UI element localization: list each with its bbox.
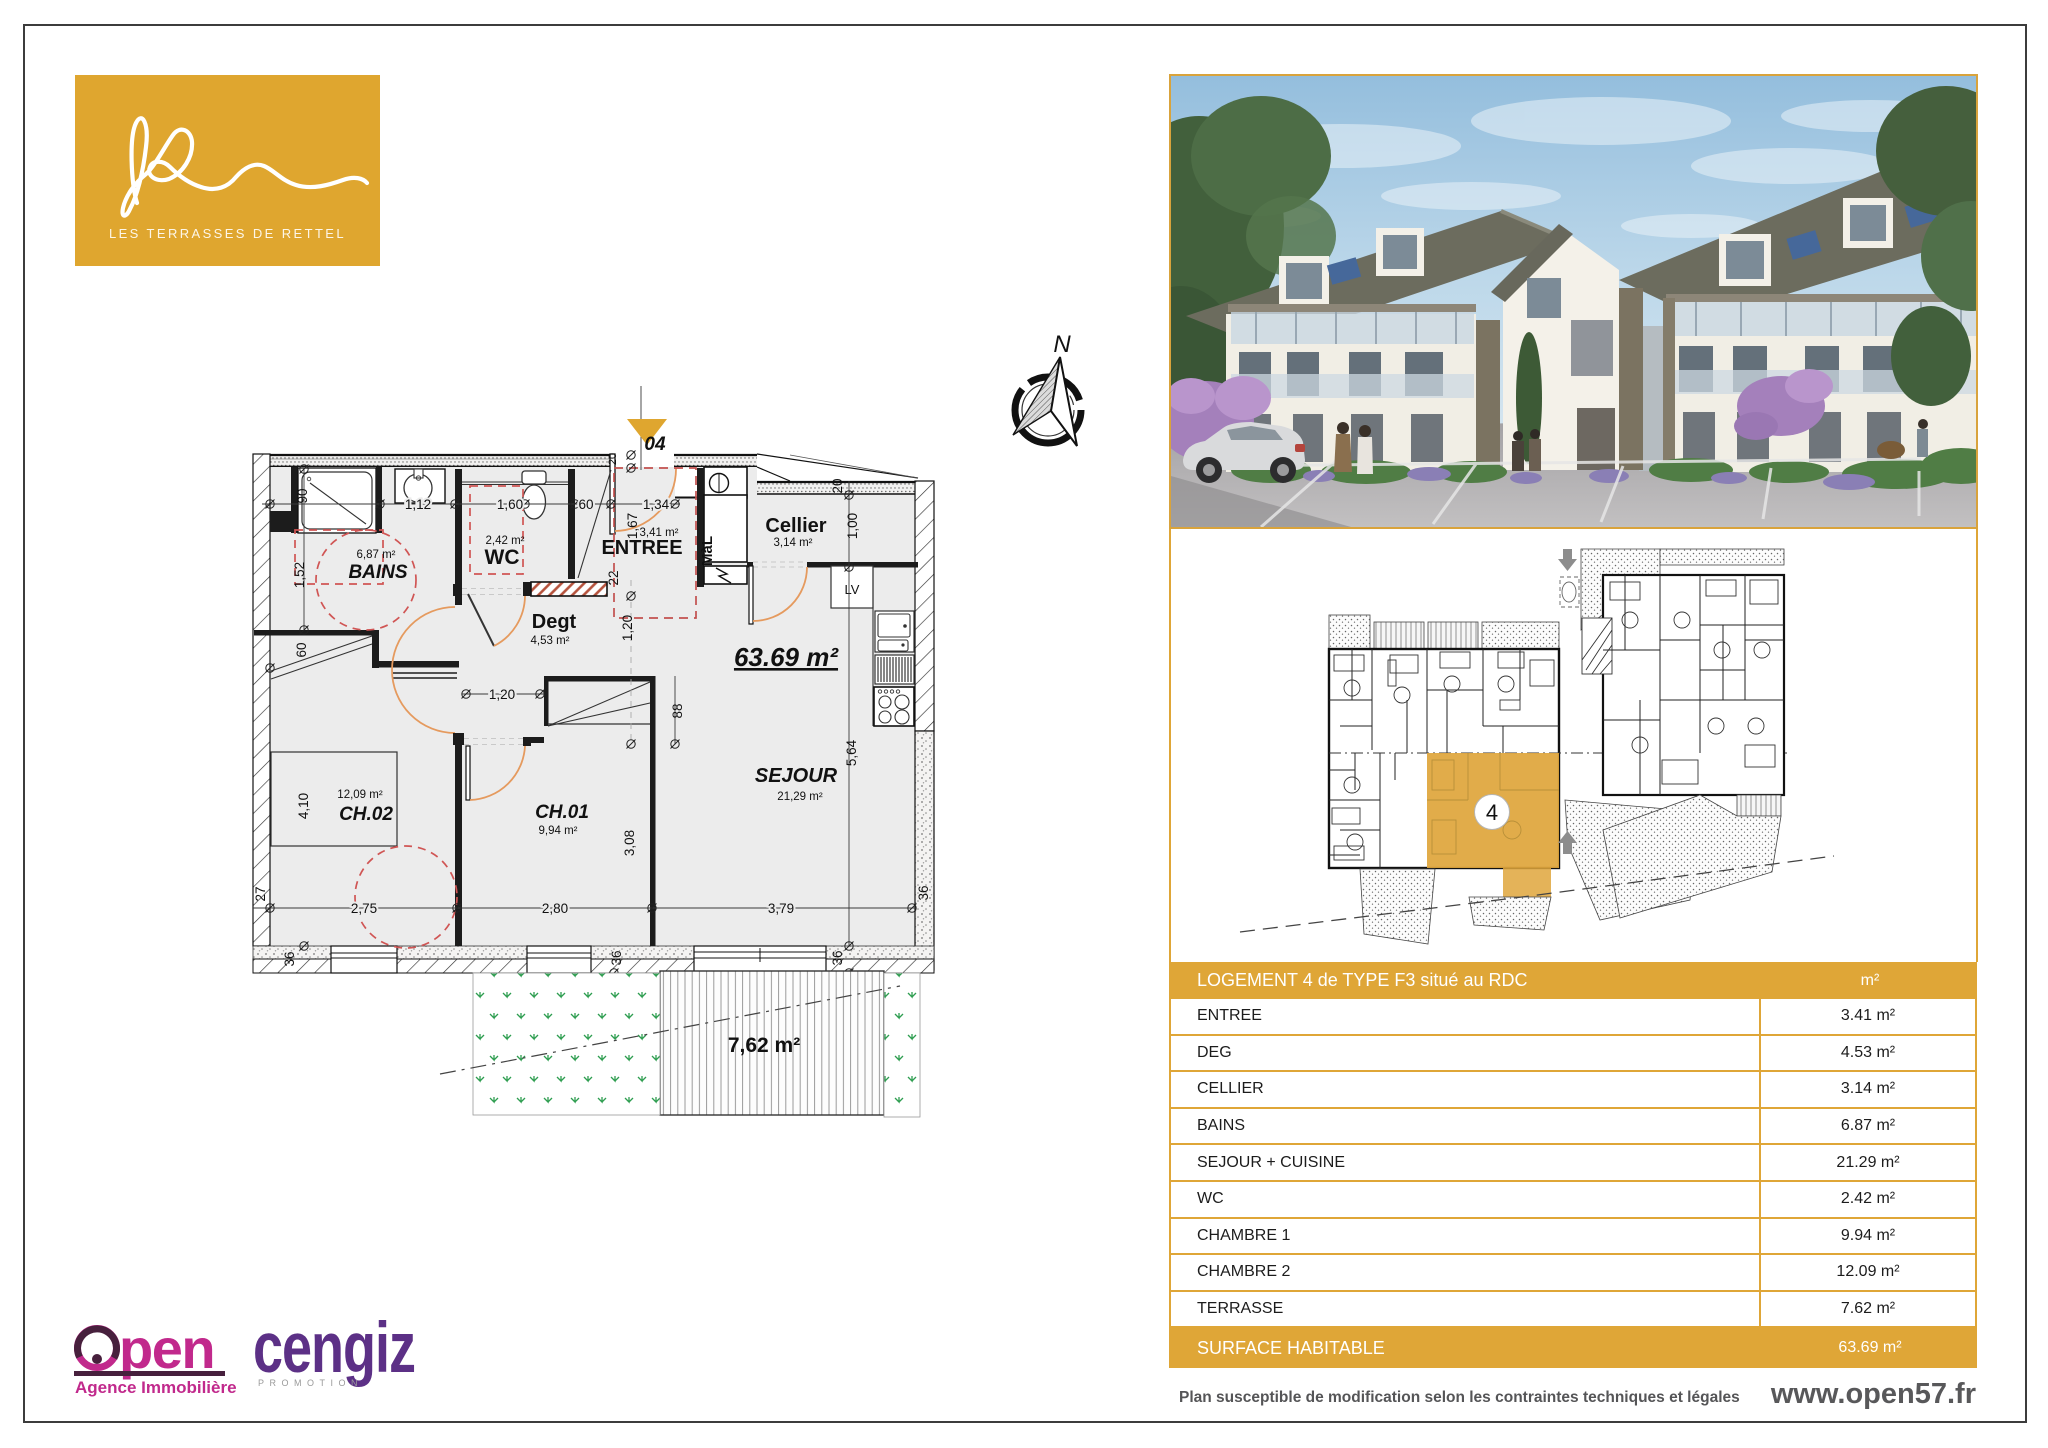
svg-text:5,64: 5,64 [844, 739, 859, 766]
svg-text:36: 36 [609, 950, 624, 965]
svg-text:Agence Immobilière: Agence Immobilière [75, 1378, 237, 1397]
svg-text:1,20: 1,20 [620, 615, 635, 641]
svg-text:Cellier: Cellier [765, 515, 826, 537]
svg-text:BAINS: BAINS [348, 562, 407, 583]
svg-text:2,80: 2,80 [542, 901, 568, 916]
svg-text:27: 27 [253, 886, 268, 901]
svg-text:CH.02: CH.02 [339, 804, 393, 825]
svg-text:3,14 m²: 3,14 m² [774, 537, 813, 549]
svg-text:Degt: Degt [532, 611, 577, 633]
svg-text:1,12: 1,12 [405, 497, 431, 512]
svg-text:3,08: 3,08 [622, 830, 637, 856]
svg-text:36: 36 [830, 950, 845, 965]
svg-text:CH.01: CH.01 [535, 802, 589, 823]
svg-text:20: 20 [607, 453, 619, 465]
svg-text:90: 90 [295, 488, 310, 503]
svg-text:1,52: 1,52 [292, 562, 307, 588]
svg-text:88: 88 [670, 703, 685, 718]
svg-text:2,75: 2,75 [351, 901, 377, 916]
svg-text:1,00: 1,00 [845, 513, 860, 539]
svg-text:PROMOTION: PROMOTION [258, 1378, 363, 1388]
svg-text:20: 20 [830, 478, 845, 493]
svg-text:SEJOUR: SEJOUR [755, 765, 838, 787]
svg-text:60: 60 [578, 497, 593, 512]
svg-text:WC: WC [485, 546, 520, 569]
svg-text:1,20: 1,20 [489, 687, 515, 702]
svg-text:cengiz: cengiz [253, 1310, 415, 1388]
svg-text:63.69 m²: 63.69 m² [734, 642, 839, 672]
svg-text:MàL: MàL [699, 536, 716, 566]
svg-text:22: 22 [606, 570, 621, 585]
svg-text:N: N [1053, 331, 1071, 358]
svg-text:1,67: 1,67 [625, 513, 640, 539]
svg-text:21,29 m²: 21,29 m² [777, 791, 823, 803]
svg-text:1,34: 1,34 [643, 497, 670, 512]
svg-text:ENTREE: ENTREE [601, 537, 682, 559]
svg-text:1,60: 1,60 [497, 497, 523, 512]
svg-text:7,62 m²: 7,62 m² [728, 1034, 800, 1057]
svg-text:LV: LV [845, 582, 860, 597]
svg-text:36: 36 [282, 951, 297, 966]
svg-text:6,87 m²: 6,87 m² [357, 549, 396, 561]
svg-text:4,10: 4,10 [296, 793, 311, 819]
svg-text:04: 04 [644, 434, 666, 455]
svg-text:4: 4 [1486, 800, 1498, 825]
svg-text:9,94 m²: 9,94 m² [539, 825, 578, 837]
svg-text:12,09 m²: 12,09 m² [337, 789, 383, 801]
svg-text:pen: pen [119, 1317, 214, 1380]
svg-text:60: 60 [294, 642, 309, 657]
svg-text:4,53 m²: 4,53 m² [531, 635, 570, 647]
svg-text:3,79: 3,79 [768, 901, 794, 916]
svg-text:36: 36 [916, 885, 931, 900]
